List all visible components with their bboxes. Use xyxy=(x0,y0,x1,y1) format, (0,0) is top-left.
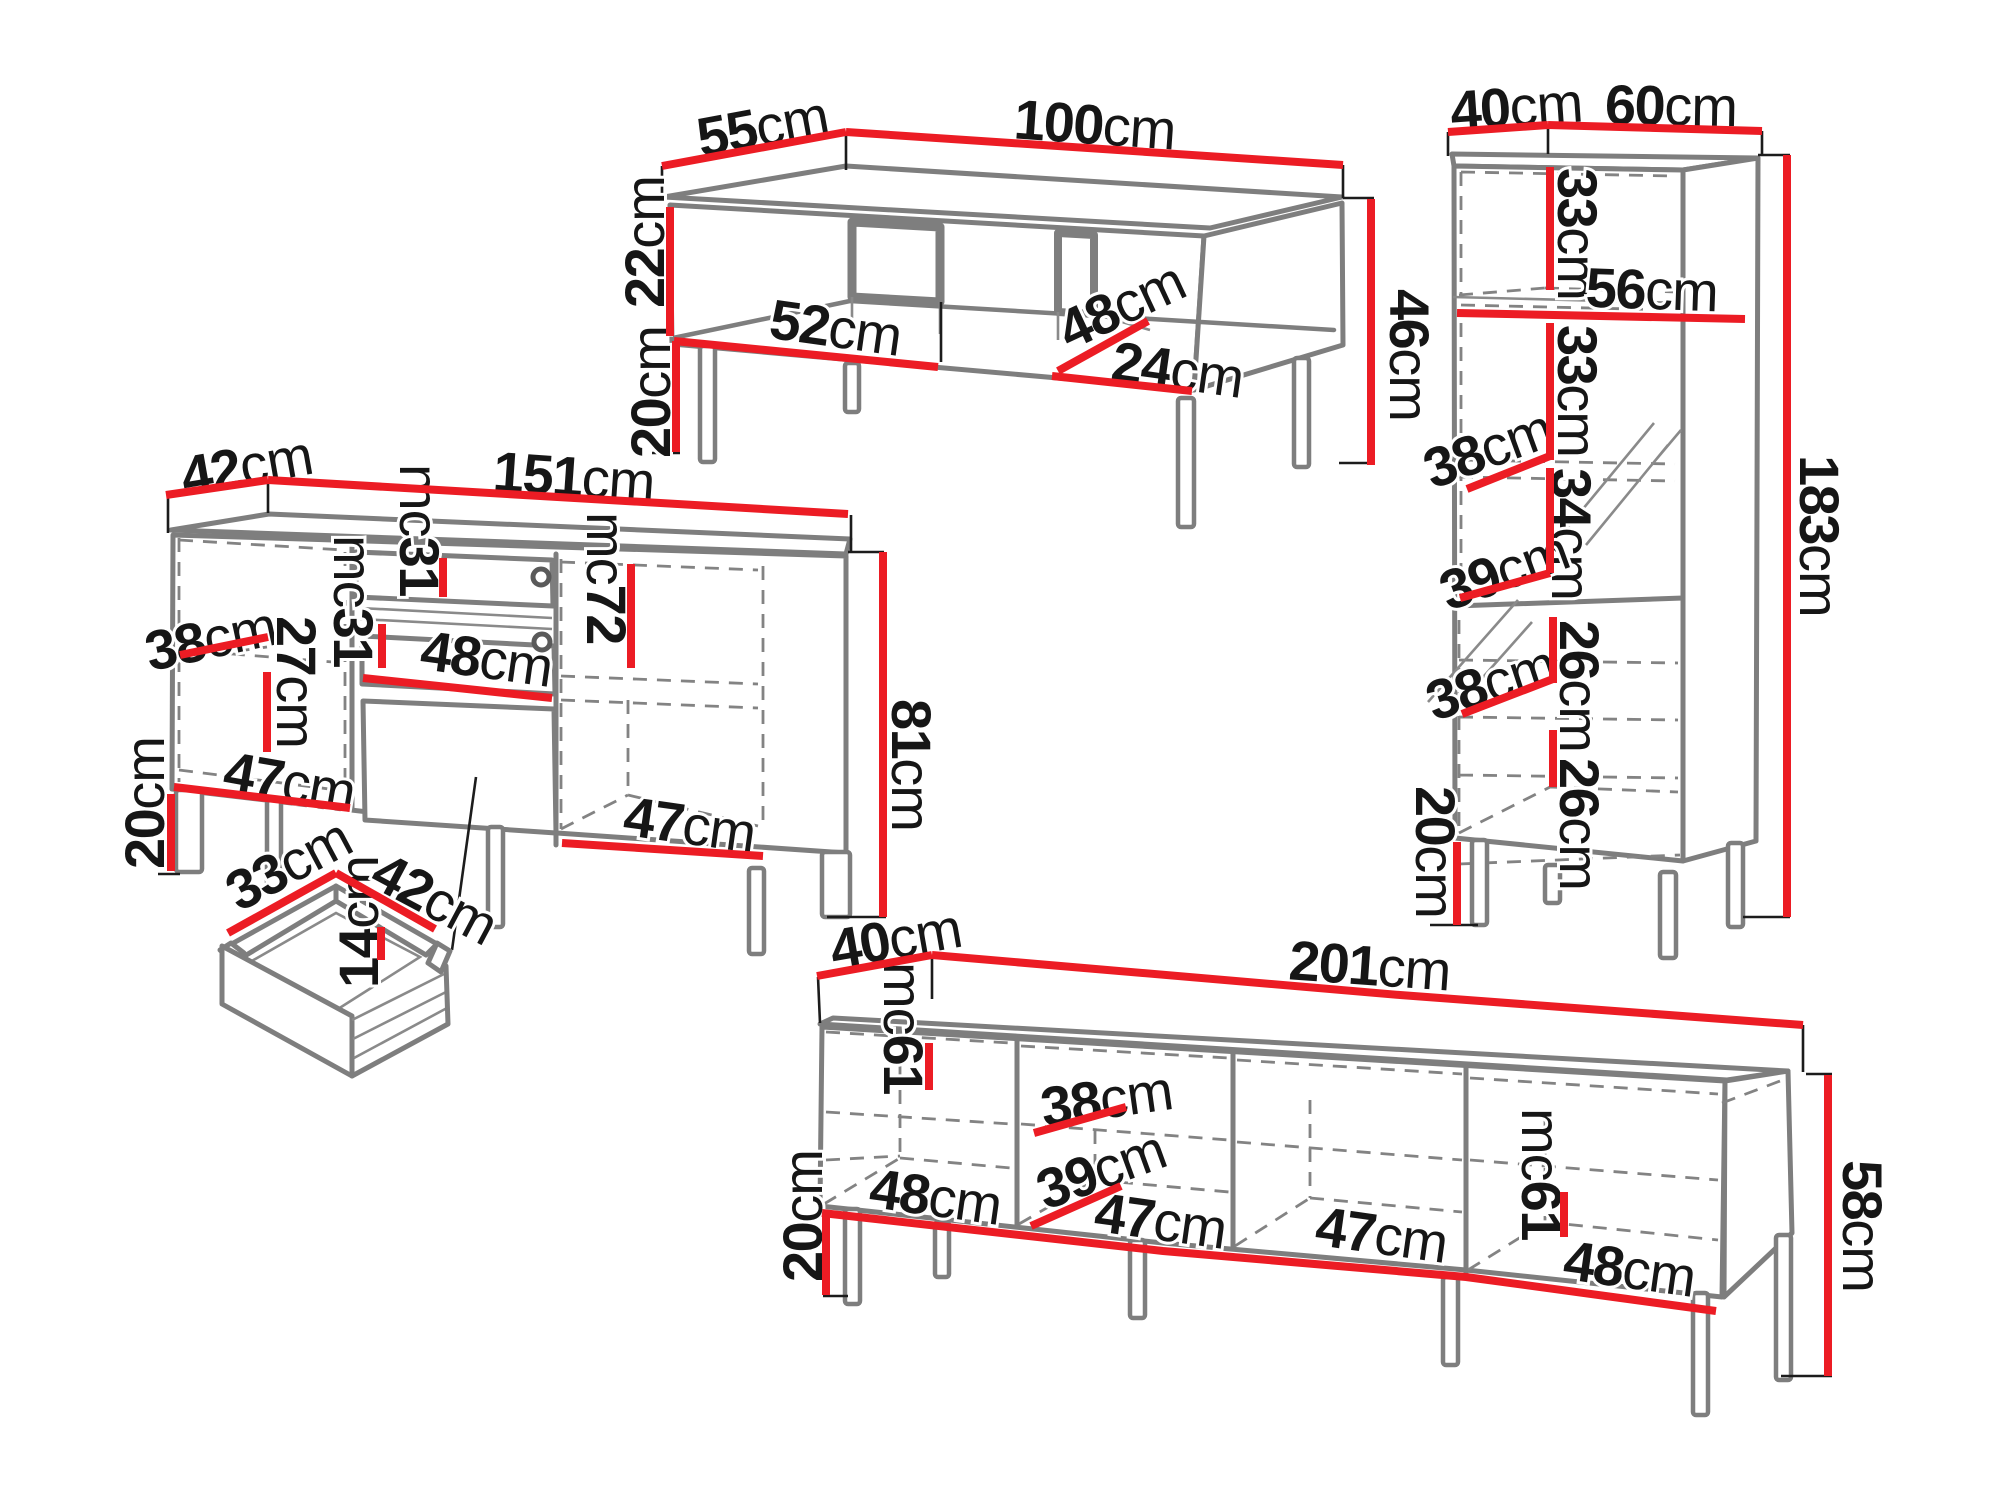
svg-text:183cm: 183cm xyxy=(1788,455,1851,617)
svg-text:81cm: 81cm xyxy=(880,699,943,831)
svg-text:27cm: 27cm xyxy=(265,616,328,748)
svg-text:33cm: 33cm xyxy=(1546,325,1609,457)
svg-text:mc31: mc31 xyxy=(322,535,385,667)
svg-text:46cm: 46cm xyxy=(1378,289,1441,421)
svg-text:26cm: 26cm xyxy=(1548,758,1611,890)
svg-text:58cm: 58cm xyxy=(1831,1160,1894,1292)
svg-text:20cm: 20cm xyxy=(113,737,176,869)
